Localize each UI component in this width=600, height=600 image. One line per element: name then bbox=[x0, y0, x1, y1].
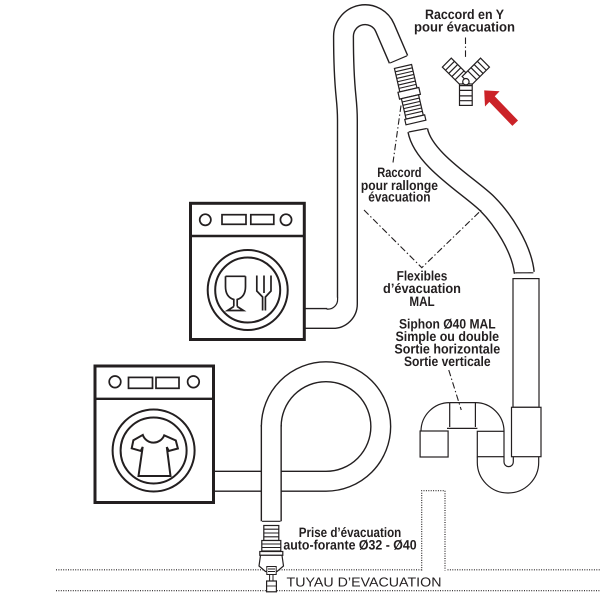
svg-text:MAL: MAL bbox=[409, 294, 434, 309]
svg-text:auto-forante Ø32 - Ø40: auto-forante Ø32 - Ø40 bbox=[283, 538, 417, 553]
svg-text:Sortie verticale: Sortie verticale bbox=[404, 354, 491, 369]
svg-text:évacuation: évacuation bbox=[368, 190, 430, 205]
svg-text:TUYAU D’EVACUATION: TUYAU D’EVACUATION bbox=[287, 575, 442, 590]
svg-text:pour évacuation: pour évacuation bbox=[414, 20, 515, 35]
